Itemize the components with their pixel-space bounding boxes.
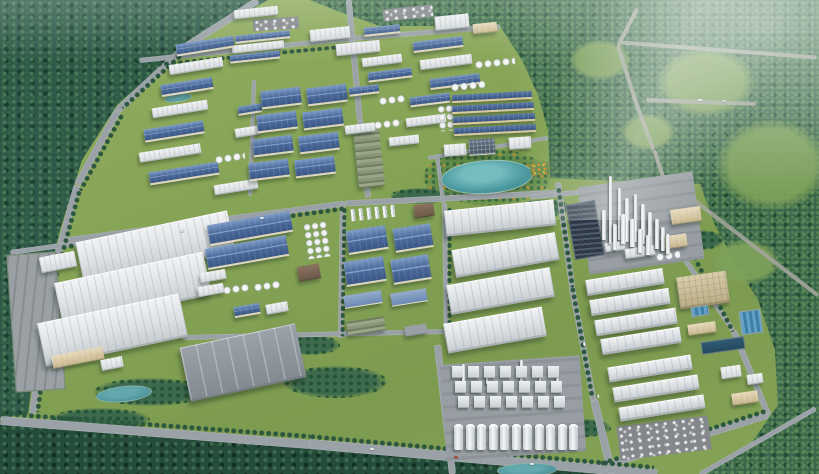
industrial-park-aerial-render xyxy=(0,0,819,474)
haze-top-overlay xyxy=(0,0,819,474)
